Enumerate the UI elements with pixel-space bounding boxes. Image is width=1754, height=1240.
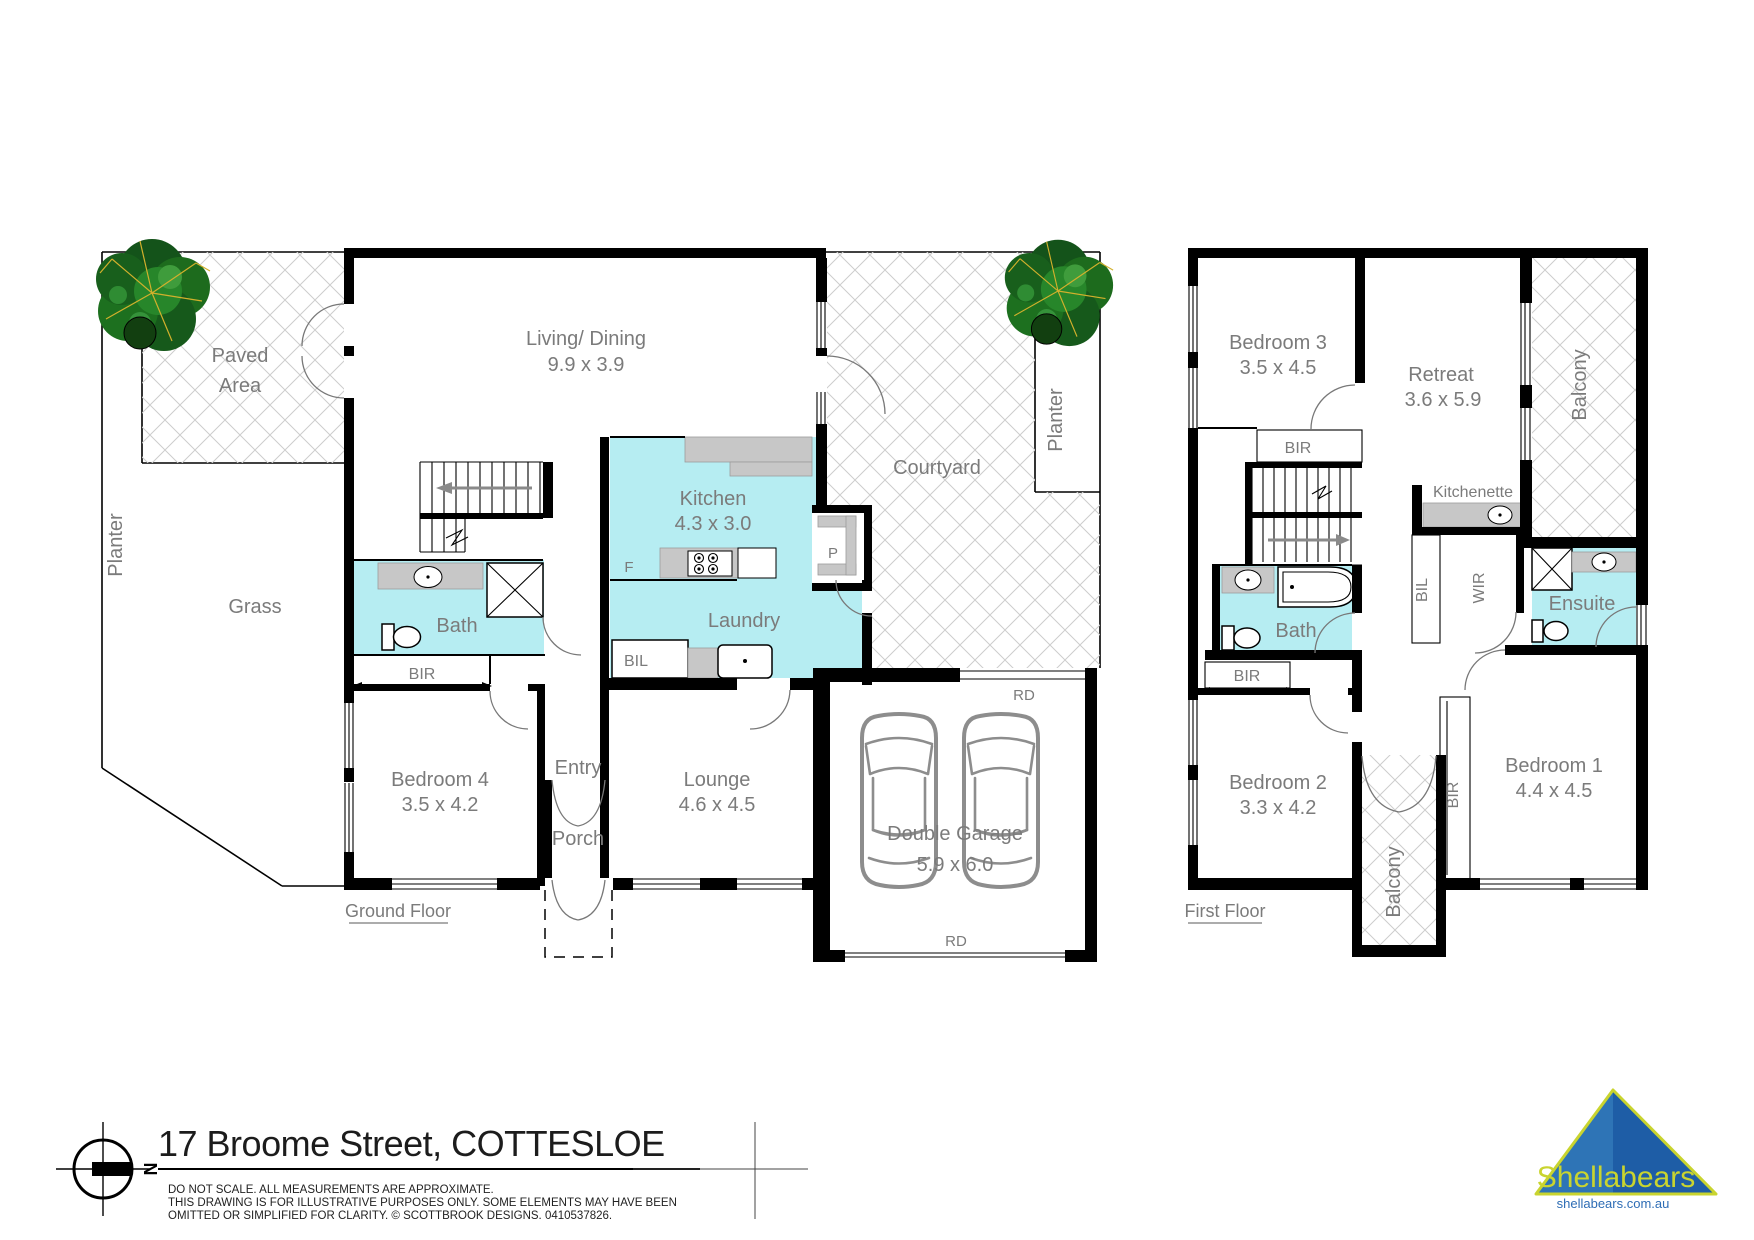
bir-label: BIR xyxy=(409,666,436,683)
bedroom4-label: Bedroom 4 xyxy=(391,769,489,791)
tree-icon xyxy=(1005,240,1113,346)
garage-label: Double Garage xyxy=(887,823,1023,845)
toilet-icon xyxy=(382,624,421,650)
compass-north-letter: N xyxy=(140,1163,160,1176)
staircase xyxy=(420,462,543,552)
wir-label: WIR xyxy=(1471,572,1488,603)
ff-staircase xyxy=(1245,462,1362,565)
shower-icon xyxy=(1532,548,1572,590)
entry-label: Entry xyxy=(555,757,602,779)
ff-bath-label: Bath xyxy=(1275,620,1316,642)
living-dining-label: Living/ Dining xyxy=(526,328,646,350)
kitchenette-counter xyxy=(1423,503,1523,527)
bedroom2-dims: 3.3 x 4.2 xyxy=(1240,797,1317,819)
brand-logo: Shellabears shellabears.com.au xyxy=(1536,1090,1716,1211)
retreat-label: Retreat xyxy=(1408,364,1474,386)
bedroom1-label: Bedroom 1 xyxy=(1505,755,1603,777)
lounge-label: Lounge xyxy=(684,769,751,791)
bath-label: Bath xyxy=(436,615,477,637)
roller-door-bottom-line xyxy=(845,953,1065,957)
brand-name: Shellabears xyxy=(1537,1161,1695,1194)
courtyard-label: Courtyard xyxy=(893,457,981,479)
first-floor-title: First Floor xyxy=(1185,901,1266,921)
disclaimer-line-2: THIS DRAWING IS FOR ILLUSTRATIVE PURPOSE… xyxy=(168,1197,677,1209)
kitchen-label: Kitchen xyxy=(680,488,747,510)
roller-door-bottom-label: RD xyxy=(945,933,967,950)
stove-icon xyxy=(688,551,732,576)
balcony-top-label: Balcony xyxy=(1569,349,1591,420)
fridge-label: F xyxy=(624,559,633,576)
bedroom3-dims: 3.5 x 4.5 xyxy=(1240,357,1317,379)
porch-outline xyxy=(545,890,612,957)
title-block: N 17 Broome Street, COTTESLOE DO NOT SCA… xyxy=(56,1122,808,1222)
ensuite-label: Ensuite xyxy=(1549,593,1616,615)
bir-hall-label: BIR xyxy=(1234,668,1261,685)
planter-right-label: Planter xyxy=(1045,388,1067,452)
sink-icon xyxy=(414,567,442,588)
roller-door-top-label: RD xyxy=(1013,687,1035,704)
kitchen-dims: 4.3 x 3.0 xyxy=(675,513,752,535)
bedroom2-label: Bedroom 2 xyxy=(1229,772,1327,794)
garage-dims: 5.9 x 6.0 xyxy=(917,854,994,876)
bil-ff-label: BIL xyxy=(1414,578,1431,602)
sink-icon xyxy=(1592,553,1616,571)
sink-icon xyxy=(1235,570,1261,590)
compass-icon: N xyxy=(56,1122,160,1216)
toilet-icon xyxy=(1222,626,1260,650)
bil-label: BIL xyxy=(624,653,648,670)
retreat-dims: 3.6 x 5.9 xyxy=(1405,389,1482,411)
bir-bedroom3-label: BIR xyxy=(1285,440,1312,457)
ground-floor-title: Ground Floor xyxy=(345,901,451,921)
floorplan-canvas: Paved Area Planter Grass Living/ Dining … xyxy=(0,0,1754,1240)
bedroom3-label: Bedroom 3 xyxy=(1229,332,1327,354)
floorplan-page: Paved Area Planter Grass Living/ Dining … xyxy=(0,0,1754,1240)
pantry-niche xyxy=(812,505,872,591)
paved-area-label: Paved xyxy=(212,345,269,367)
laundry-label: Laundry xyxy=(708,610,780,632)
pantry-label: P xyxy=(828,545,838,562)
ground-floor-plan: Paved Area Planter Grass Living/ Dining … xyxy=(96,239,1113,962)
roller-door-top-line xyxy=(960,671,1085,679)
first-floor-plan: Bedroom 3 3.5 x 4.5 BIR Retreat 3.6 x 5.… xyxy=(1185,248,1649,957)
disclaimer-line-3: OMITTED OR SIMPLIFIED FOR CLARITY. © SCO… xyxy=(168,1210,612,1222)
bir-bedroom1-label: BIR xyxy=(1445,782,1462,809)
porch-label: Porch xyxy=(552,828,604,850)
toilet-icon xyxy=(1532,620,1568,642)
brand-website: shellabears.com.au xyxy=(1557,1196,1670,1211)
lounge-dims: 4.6 x 4.5 xyxy=(679,794,756,816)
balcony-mid-label: Balcony xyxy=(1383,846,1405,917)
bedroom4-dims: 3.5 x 4.2 xyxy=(402,794,479,816)
grass-label: Grass xyxy=(228,596,281,618)
shower-icon xyxy=(487,563,543,617)
planter-left-label: Planter xyxy=(105,513,127,577)
bedroom1-dims: 4.4 x 4.5 xyxy=(1516,780,1593,802)
kitchenette-label: Kitchenette xyxy=(1433,484,1513,501)
page-title: 17 Broome Street, COTTESLOE xyxy=(158,1123,665,1164)
sink-icon xyxy=(1488,506,1512,524)
living-dining-dims: 9.9 x 3.9 xyxy=(548,354,625,376)
bathtub-icon xyxy=(1278,567,1356,607)
paved-area-label2: Area xyxy=(219,375,262,397)
disclaimer-line-1: DO NOT SCALE. ALL MEASUREMENTS ARE APPRO… xyxy=(168,1184,494,1196)
